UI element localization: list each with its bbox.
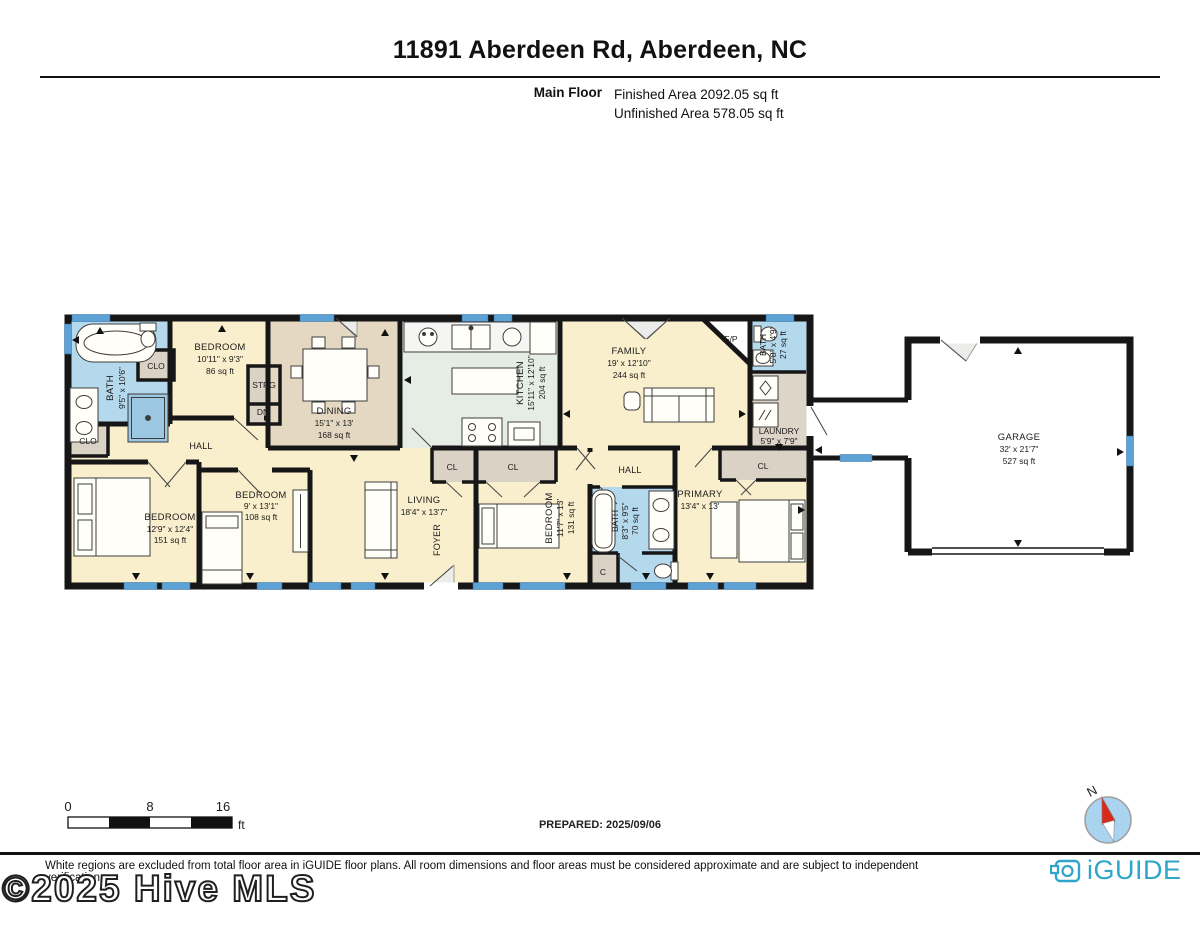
floor-name: Main Floor	[462, 85, 602, 100]
c-closet-label: C	[600, 567, 606, 577]
scale-tick-16: 16	[216, 799, 230, 814]
room-name: PRIMARY	[677, 489, 723, 500]
floor-plan-page: BATH 9'5" x 10'6" CLO BEDROOM 10'11" x 9…	[0, 0, 1200, 927]
strg-label: STRG	[252, 380, 276, 390]
room-name: KITCHEN	[515, 361, 526, 405]
scale-tick-8: 8	[146, 799, 153, 814]
washer-icon	[753, 376, 778, 400]
dining-label: DINING 15'1" x 13' 168 sq ft	[315, 406, 354, 440]
room-name: LIVING	[408, 495, 441, 506]
room-dims: 12'9" x 12'4"	[147, 524, 194, 534]
room-area: 131 sq ft	[566, 501, 576, 534]
room-area: 70 sq ft	[630, 506, 640, 535]
room-area: 86 sq ft	[206, 366, 235, 376]
bed-icon	[739, 500, 805, 562]
room-area: 244 sq ft	[613, 370, 646, 380]
header-divider	[40, 76, 1160, 78]
room-name: BEDROOM	[544, 492, 555, 543]
clo-bath-label: CLO	[147, 361, 165, 371]
iguide-logo-text: iGUIDE	[1087, 855, 1182, 886]
side-table-icon	[624, 392, 640, 410]
room-name: FAMILY	[612, 346, 647, 357]
fireplace-label: F/P	[724, 334, 738, 344]
room-dims: 5'9" x 7'9"	[760, 436, 797, 446]
finished-area: Finished Area 2092.05 sq ft	[614, 85, 784, 104]
room-dims: 5'8" x 4'9"	[768, 326, 778, 363]
room-area: 151 sq ft	[154, 535, 187, 545]
shower-icon	[128, 394, 168, 442]
dn-label: DN	[257, 407, 269, 417]
room-name: BATH	[105, 375, 116, 401]
stove-icon	[462, 418, 502, 446]
room-area: 108 sq ft	[245, 512, 278, 522]
compass-icon: N	[1084, 782, 1131, 843]
unfinished-area: Unfinished Area 578.05 sq ft	[614, 104, 784, 123]
room-name: BATH	[610, 510, 620, 532]
kitchen-counter-icon	[404, 322, 556, 354]
room-dims: 19' x 12'10"	[607, 358, 651, 368]
room-name: LAUNDRY	[759, 426, 800, 436]
room-name: FOYER	[432, 524, 442, 556]
bed-icon	[202, 512, 242, 584]
page-title: 11891 Aberdeen Rd, Aberdeen, NC	[0, 36, 1200, 65]
room-dims: 10'11" x 9'3"	[197, 354, 243, 364]
room-area: 27 sq ft	[778, 330, 788, 359]
room-dims: 15'11" x 12'10"	[526, 355, 536, 410]
mls-watermark: ©2025 Hive MLS	[2, 868, 316, 910]
kitchen-cart-icon	[508, 422, 540, 446]
room-area: 204 sq ft	[537, 366, 547, 399]
family-label: FAMILY 19' x 12'10" 244 sq ft	[607, 346, 651, 380]
foyer-label: FOYER	[432, 524, 442, 556]
room-dims: 9' x 13'1"	[244, 501, 278, 511]
clo-left-label: CLO	[79, 436, 97, 446]
bed-icon	[74, 478, 150, 556]
cl-bedroom-label: CL	[508, 462, 519, 472]
room-dims: 15'1" x 13'	[315, 418, 354, 428]
room-area: 527 sq ft	[1003, 456, 1036, 466]
pocket-door-icon	[293, 490, 308, 552]
dryer-icon	[753, 403, 778, 427]
cl-living-label: CL	[447, 462, 458, 472]
garage-label: GARAGE 32' x 21'7" 527 sq ft	[998, 432, 1040, 466]
scale-tick-0: 0	[64, 799, 71, 814]
hall-mid-label: HALL	[618, 465, 641, 475]
room-dims: 9'5" x 10'6"	[117, 367, 127, 409]
toilet-icon	[140, 323, 156, 347]
hall-left-label: HALL	[189, 441, 212, 451]
vanity-sinks-icon	[70, 388, 98, 442]
cl-primary-label: CL	[758, 461, 769, 471]
room-name: BEDROOM	[194, 342, 245, 353]
room-dims: 11'7" x 13'	[555, 499, 565, 538]
room-name: BEDROOM	[235, 490, 286, 501]
floor-plan-drawing: BATH 9'5" x 10'6" CLO BEDROOM 10'11" x 9…	[0, 0, 1200, 927]
prepared-date: PREPARED: 2025/09/06	[0, 819, 1200, 831]
iguide-camera-icon	[1050, 857, 1082, 885]
room-name: BEDROOM	[144, 512, 195, 523]
room-name: GARAGE	[998, 432, 1040, 443]
compass-north-label: N	[1084, 782, 1099, 800]
footer-divider	[0, 852, 1200, 855]
room-area: 168 sq ft	[318, 430, 351, 440]
laundry-label: LAUNDRY 5'9" x 7'9"	[759, 426, 800, 446]
iguide-logo: iGUIDE	[1050, 855, 1182, 886]
room-dims: 8'3" x 9'5"	[620, 502, 630, 539]
kitchen-island-icon	[452, 368, 518, 394]
sofa-icon	[644, 388, 714, 422]
room-dims: 32' x 21'7"	[1000, 444, 1039, 454]
area-summary: Finished Area 2092.05 sq ft Unfinished A…	[614, 85, 784, 123]
sofa-icon	[365, 482, 397, 558]
room-name: DINING	[316, 406, 351, 417]
vanity-sinks-icon	[649, 491, 674, 549]
room-name: BATH	[758, 334, 768, 356]
room-dims: 13'4" x 13'	[681, 501, 720, 511]
room-dims: 18'4" x 13'7"	[401, 507, 448, 517]
